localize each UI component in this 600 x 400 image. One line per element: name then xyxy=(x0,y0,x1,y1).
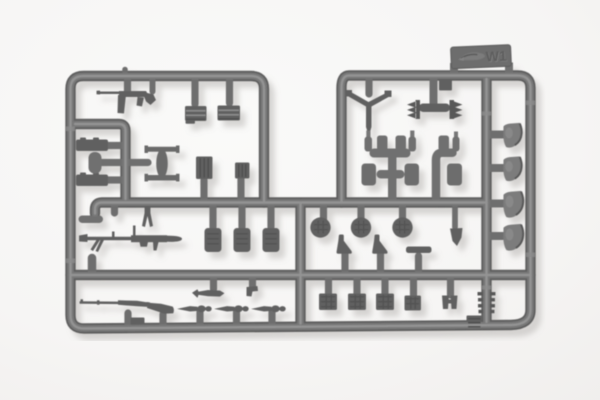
svg-text:W1: W1 xyxy=(485,48,507,65)
